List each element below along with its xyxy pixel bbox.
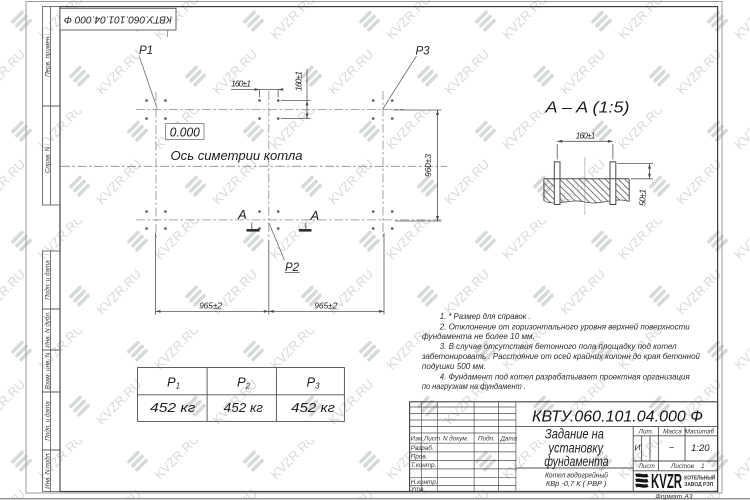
svg-text:КВТУ.060.101.04.000 Ф: КВТУ.060.101.04.000 Ф xyxy=(64,14,172,25)
svg-text:КВр -0,7 К ( РВР ): КВр -0,7 К ( РВР ) xyxy=(546,479,607,488)
svg-text:N докум.: N докум. xyxy=(443,435,468,443)
svg-text:Лист: Лист xyxy=(638,463,655,470)
svg-text:Лит.: Лит. xyxy=(638,428,654,435)
svg-text:0.000: 0.000 xyxy=(170,124,201,139)
svg-text:Формат А3: Формат А3 xyxy=(655,494,692,500)
svg-text:Справ. N: Справ. N xyxy=(45,146,52,173)
svg-text:Пров.: Пров. xyxy=(411,454,428,461)
svg-text:Взам. инв. N: Взам. инв. N xyxy=(45,352,52,389)
svg-text:A – A (1:5): A – A (1:5) xyxy=(544,100,629,117)
svg-text:965±2: 965±2 xyxy=(199,300,222,310)
svg-text:Подп.: Подп. xyxy=(478,435,495,443)
svg-text:160±1: 160±1 xyxy=(231,79,251,89)
svg-text:Масса: Масса xyxy=(663,428,682,435)
svg-text:965±2: 965±2 xyxy=(314,300,337,310)
svg-text:Разраб.: Разраб. xyxy=(411,444,434,452)
svg-text:KVZR: KVZR xyxy=(651,471,682,493)
svg-text:P1: P1 xyxy=(139,45,153,57)
svg-text:ЗАВОД РЭП: ЗАВОД РЭП xyxy=(684,482,713,488)
svg-text:Ось симетрии котла: Ось симетрии котла xyxy=(171,148,303,163)
svg-text:452 кг: 452 кг xyxy=(224,401,263,415)
svg-text:фундамента не более 10 мм.: фундамента не более 10 мм. xyxy=(422,331,535,341)
svg-text:забетонировать . Расстояние: забетонировать . Расстояние от осей край… xyxy=(421,351,700,361)
svg-text:Изм.Лист: Изм.Лист xyxy=(411,436,441,443)
svg-text:Утв.: Утв. xyxy=(410,486,425,493)
svg-text:Масштаб: Масштаб xyxy=(685,427,715,435)
svg-text:Т.контр.: Т.контр. xyxy=(411,462,436,469)
svg-text:1: 1 xyxy=(701,463,705,470)
svg-text:P3: P3 xyxy=(416,46,431,58)
svg-text:160±1: 160±1 xyxy=(576,131,596,141)
svg-text:И: И xyxy=(634,443,641,453)
svg-text:Инв. N подл.: Инв. N подл. xyxy=(44,452,52,489)
svg-text:Н.контр.: Н.контр. xyxy=(411,479,438,486)
svg-text:Листов: Листов xyxy=(670,463,695,470)
svg-text:–: – xyxy=(668,442,674,452)
svg-text:2. Отклонение от горизонтал: 2. Отклонение от горизонтального уровня … xyxy=(439,321,690,331)
svg-text:по нагрузкам на фундамент .: по нагрузкам на фундамент . xyxy=(422,381,526,391)
svg-text:452 кг: 452 кг xyxy=(150,401,196,415)
svg-text:4. Фундамент под котел раз: 4. Фундамент под котел разрабатывает про… xyxy=(440,371,691,381)
svg-text:3. В случае отсутствия бет: 3. В случае отсутствия бетонного пола пл… xyxy=(440,341,677,351)
svg-text:Подп. и дата: Подп. и дата xyxy=(44,401,52,441)
svg-text:КОТЕЛЬНЫЙ: КОТЕЛЬНЫЙ xyxy=(684,473,715,481)
svg-text:A: A xyxy=(237,207,247,222)
svg-text:1:20: 1:20 xyxy=(691,443,710,454)
svg-text:подушки 500 мм.: подушки 500 мм. xyxy=(422,361,486,371)
svg-text:1. * Размер для справок .: 1. * Размер для справок . xyxy=(440,311,531,321)
svg-text:160±1: 160±1 xyxy=(294,71,304,91)
svg-text:960±3: 960±3 xyxy=(423,154,433,177)
svg-text:КВТУ.060.101.04.000 Ф: КВТУ.060.101.04.000 Ф xyxy=(532,409,703,426)
svg-text:Подп. и дата: Подп. и дата xyxy=(44,260,52,300)
svg-text:Перв. примен.: Перв. примен. xyxy=(45,35,52,77)
svg-text:Дата: Дата xyxy=(500,436,518,443)
svg-text:Задание на: Задание на xyxy=(545,427,604,442)
svg-text:50±1: 50±1 xyxy=(638,189,648,206)
svg-text:A: A xyxy=(310,208,320,223)
svg-text:Инв. N дубл.: Инв. N дубл. xyxy=(44,311,52,347)
svg-text:фундамента: фундамента xyxy=(544,454,609,469)
svg-text:452 кг: 452 кг xyxy=(291,401,335,415)
